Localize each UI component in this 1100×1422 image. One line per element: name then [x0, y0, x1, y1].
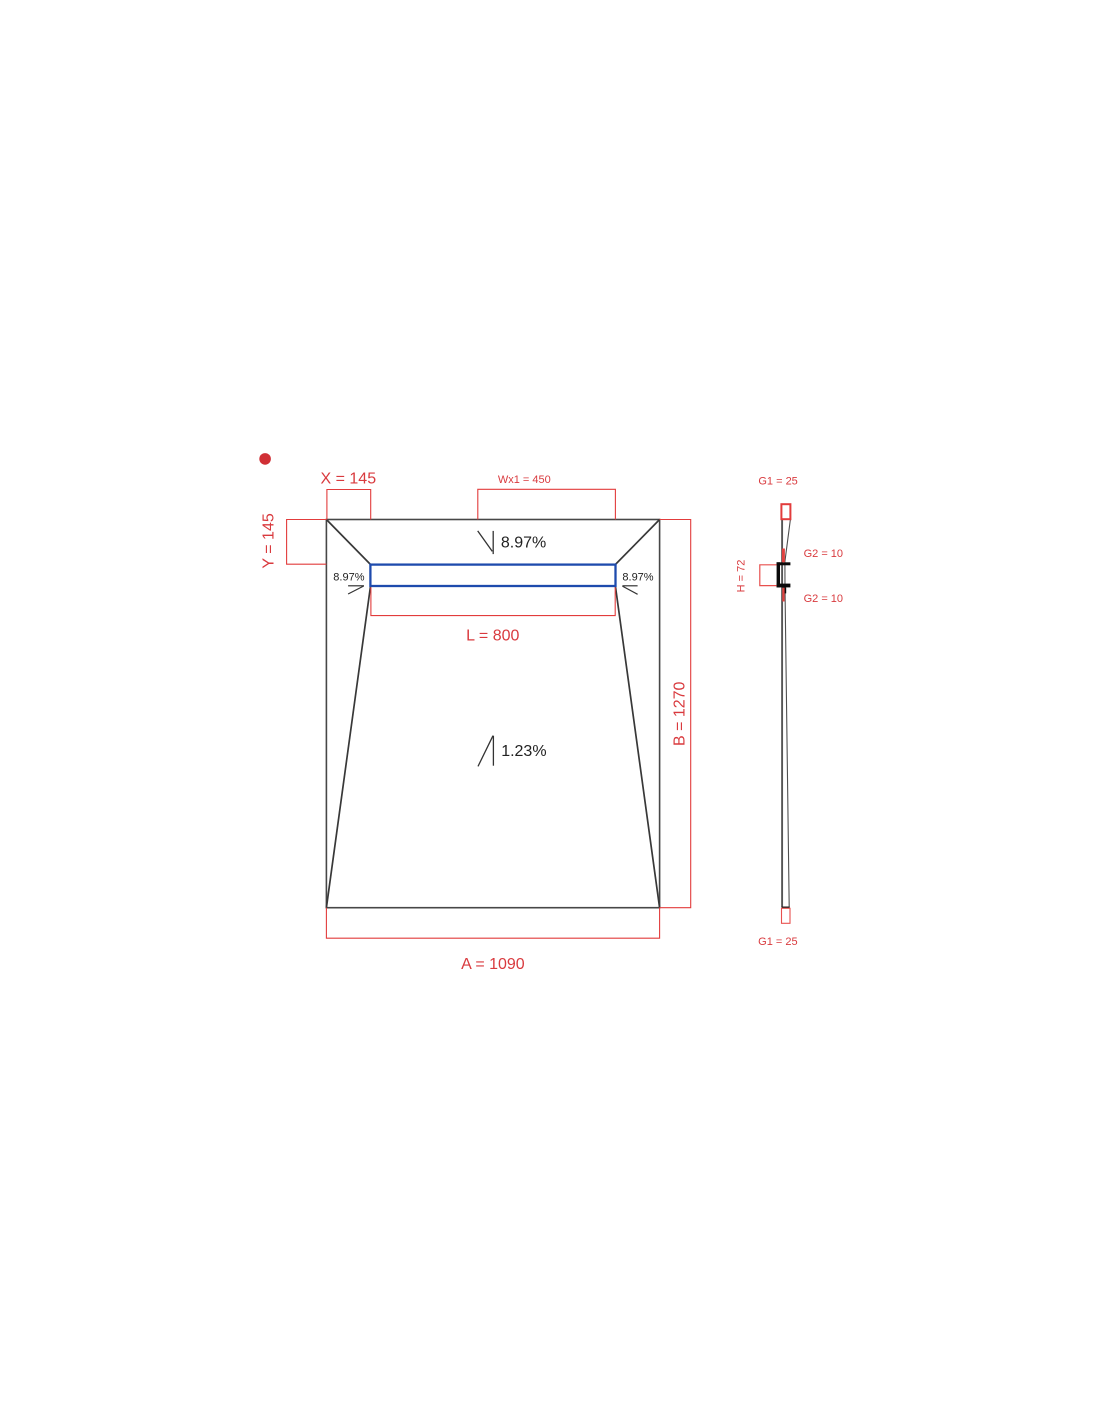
svg-text:Wx1 = 450: Wx1 = 450 — [498, 474, 551, 486]
svg-text:X = 145: X = 145 — [320, 471, 376, 488]
svg-text:A = 1090: A = 1090 — [461, 956, 525, 973]
svg-text:G1 = 25: G1 = 25 — [758, 936, 797, 948]
svg-text:B = 1270: B = 1270 — [671, 681, 688, 746]
svg-text:1.23%: 1.23% — [501, 743, 546, 760]
svg-text:8.97%: 8.97% — [501, 534, 546, 551]
svg-text:L = 800: L = 800 — [466, 627, 519, 644]
svg-text:8.97%: 8.97% — [333, 572, 364, 584]
svg-text:G1 = 25: G1 = 25 — [758, 475, 797, 487]
svg-text:H = 72: H = 72 — [735, 560, 747, 593]
svg-text:8.97%: 8.97% — [622, 572, 653, 584]
svg-text:Y = 145: Y = 145 — [261, 513, 278, 568]
svg-text:G2 = 10: G2 = 10 — [804, 593, 843, 605]
svg-text:G2 = 10: G2 = 10 — [804, 548, 843, 560]
